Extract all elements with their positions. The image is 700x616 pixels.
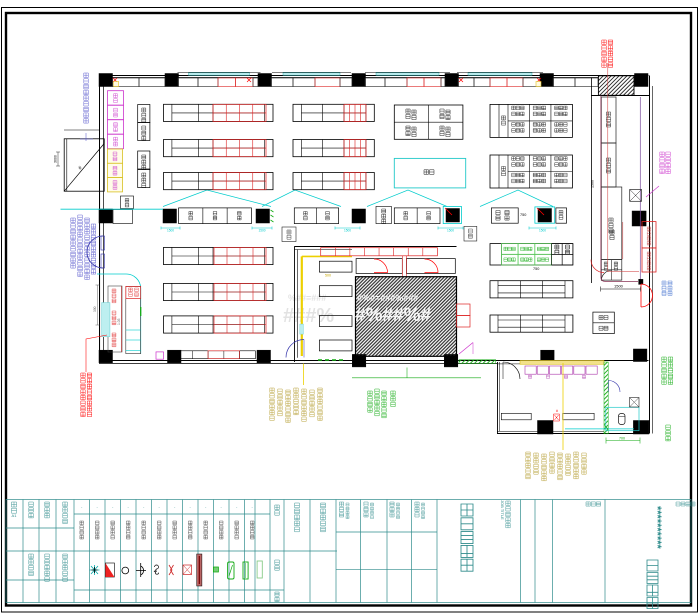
svg-text:1.03: 1.03	[117, 318, 121, 325]
svg-text:750: 750	[520, 213, 526, 217]
svg-text:#%##%#: #%##%#	[355, 305, 431, 326]
svg-text:**********: **********	[651, 506, 663, 550]
svg-text:750: 750	[533, 267, 539, 271]
svg-text:#: #	[556, 409, 558, 413]
svg-text:%##=###: %##=###	[288, 293, 326, 303]
svg-text:500: 500	[325, 274, 331, 278]
svg-text:A1: A1	[12, 513, 18, 518]
svg-text:1500: 1500	[258, 229, 265, 233]
svg-text:700: 700	[619, 437, 625, 441]
svg-text:###%: ###%	[283, 305, 334, 327]
svg-text:1500: 1500	[167, 229, 174, 233]
svg-text:1500: 1500	[539, 229, 546, 233]
svg-text:JOB TITLE: JOB TITLE	[500, 500, 505, 520]
svg-text:#%#=###%###: #%#=###%###	[357, 293, 418, 303]
svg-text:1500: 1500	[614, 284, 624, 289]
svg-text:300: 300	[93, 306, 97, 312]
svg-text:1500: 1500	[344, 229, 351, 233]
svg-text:1500: 1500	[447, 229, 454, 233]
svg-text:1500: 1500	[591, 180, 595, 188]
svg-text:3000: 3000	[54, 155, 58, 163]
